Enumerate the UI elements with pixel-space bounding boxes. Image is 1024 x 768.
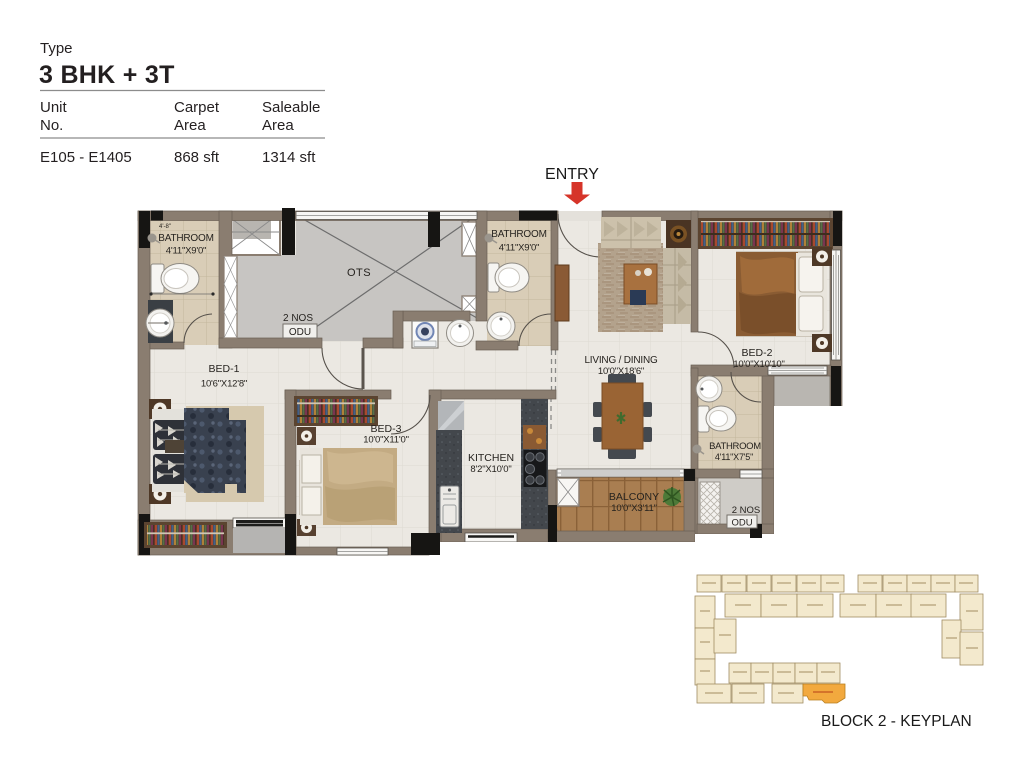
svg-text:4'11"X7'5": 4'11"X7'5" — [715, 452, 753, 462]
svg-text:2 NOS: 2 NOS — [732, 505, 761, 516]
svg-text:10'6"X12'8": 10'6"X12'8" — [201, 379, 247, 390]
svg-text:Carpet: Carpet — [174, 99, 220, 116]
svg-text:BLOCK 2 - KEYPLAN: BLOCK 2 - KEYPLAN — [821, 713, 972, 730]
svg-text:BATHROOM: BATHROOM — [709, 441, 761, 452]
svg-text:KITCHEN: KITCHEN — [468, 452, 514, 464]
svg-text:BALCONY: BALCONY — [609, 491, 659, 503]
svg-text:4'11"X9'0": 4'11"X9'0" — [166, 246, 206, 257]
svg-text:Saleable: Saleable — [262, 99, 320, 116]
svg-text:8'2"X10'0": 8'2"X10'0" — [470, 464, 511, 475]
svg-text:BED-3: BED-3 — [371, 423, 402, 435]
svg-text:4'-8": 4'-8" — [159, 224, 171, 230]
svg-text:1314 sft: 1314 sft — [262, 149, 316, 166]
svg-text:Area: Area — [174, 117, 206, 134]
svg-text:ODU: ODU — [289, 327, 311, 338]
svg-text:Unit: Unit — [40, 99, 68, 116]
svg-text:BATHROOM: BATHROOM — [491, 229, 546, 240]
svg-text:LIVING / DINING: LIVING / DINING — [584, 355, 658, 366]
svg-text:10'0"X11'0": 10'0"X11'0" — [363, 435, 409, 446]
svg-text:ENTRY: ENTRY — [545, 166, 599, 183]
svg-text:BATHROOM: BATHROOM — [158, 233, 213, 244]
svg-text:10'0"X18'6": 10'0"X18'6" — [598, 366, 644, 377]
svg-text:10'0"X10'10": 10'0"X10'10" — [733, 359, 784, 370]
svg-text:No.: No. — [40, 117, 63, 134]
svg-text:3 BHK + 3T: 3 BHK + 3T — [39, 61, 175, 89]
svg-text:BED-2: BED-2 — [742, 347, 773, 359]
svg-text:ODU: ODU — [731, 518, 752, 529]
svg-text:E105 - E1405: E105 - E1405 — [40, 149, 132, 166]
svg-text:Type: Type — [40, 40, 73, 57]
svg-text:BED-1: BED-1 — [209, 363, 240, 375]
svg-text:10'0"X3'11": 10'0"X3'11" — [611, 503, 657, 514]
svg-text:OTS: OTS — [347, 267, 371, 279]
svg-text:Area: Area — [262, 117, 294, 134]
svg-text:868 sft: 868 sft — [174, 149, 220, 166]
svg-text:4'11"X9'0": 4'11"X9'0" — [499, 243, 539, 254]
svg-text:2 NOS: 2 NOS — [283, 313, 313, 324]
